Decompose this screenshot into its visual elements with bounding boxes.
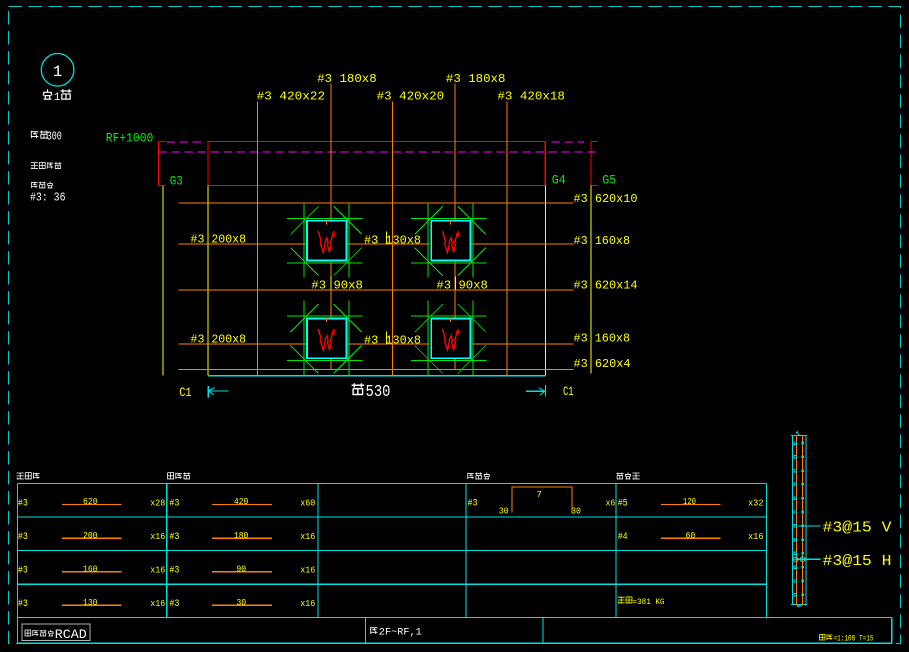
- svg-text:#3 180x8: #3 180x8: [317, 72, 377, 86]
- svg-text:x6: x6: [606, 498, 616, 508]
- svg-text:90: 90: [236, 564, 246, 574]
- svg-text:#3: #3: [18, 566, 28, 577]
- svg-text:1: 1: [53, 63, 63, 81]
- svg-text:x16: x16: [300, 532, 315, 542]
- svg-text:x16: x16: [150, 599, 165, 609]
- svg-text:30: 30: [499, 506, 509, 516]
- svg-text:#3 130x8: #3 130x8: [364, 233, 421, 247]
- svg-text:30: 30: [571, 506, 581, 516]
- svg-text:#3: #3: [468, 498, 478, 509]
- svg-text:#3 200x8: #3 200x8: [191, 332, 247, 346]
- svg-text:#3 90x8: #3 90x8: [436, 278, 488, 292]
- svg-text:x28: x28: [150, 498, 165, 508]
- svg-text:=1:100 T=15: =1:100 T=15: [834, 635, 874, 644]
- svg-text:#3: #3: [169, 599, 179, 610]
- svg-text:G3: G3: [170, 174, 183, 189]
- svg-text:#3: #3: [169, 566, 179, 577]
- svg-text:#3 200x8: #3 200x8: [191, 232, 247, 246]
- svg-text:x32: x32: [748, 498, 764, 508]
- svg-text:#5: #5: [618, 498, 628, 509]
- svg-text:300: 300: [47, 130, 62, 144]
- svg-text:530: 530: [366, 382, 391, 401]
- svg-text:G5: G5: [602, 173, 616, 188]
- svg-text:#3: #3: [169, 532, 179, 543]
- svg-text:C1: C1: [179, 385, 192, 400]
- svg-text:1: 1: [54, 92, 61, 104]
- svg-text:#3 130x8: #3 130x8: [364, 334, 421, 348]
- svg-text:x16: x16: [300, 566, 315, 576]
- svg-text:7: 7: [537, 490, 542, 500]
- svg-text:x16: x16: [150, 532, 165, 542]
- svg-text:#3: #3: [18, 599, 28, 610]
- svg-text:#4: #4: [618, 532, 628, 543]
- svg-text:#3 420x22: #3 420x22: [257, 90, 326, 104]
- svg-text:x60: x60: [300, 498, 315, 508]
- svg-text:30: 30: [236, 598, 246, 608]
- svg-text:#3: #3: [18, 498, 28, 509]
- svg-text:420: 420: [234, 497, 249, 507]
- svg-text:#3@15 H: #3@15 H: [823, 554, 892, 570]
- svg-text:620: 620: [83, 497, 98, 507]
- svg-text:#3 620x10: #3 620x10: [574, 192, 638, 206]
- svg-text:RF+1000: RF+1000: [106, 132, 154, 146]
- svg-text:#3 160x8: #3 160x8: [574, 234, 631, 248]
- svg-text:60: 60: [686, 531, 696, 541]
- svg-text:G4: G4: [552, 173, 566, 188]
- svg-text:#3 90x8: #3 90x8: [311, 278, 363, 292]
- svg-text:#3 620x14: #3 620x14: [574, 278, 638, 292]
- svg-text:#3: #3: [169, 498, 179, 509]
- svg-text:x16: x16: [748, 532, 764, 542]
- svg-text:130: 130: [83, 598, 98, 608]
- svg-text:160: 160: [83, 564, 98, 574]
- svg-text:200: 200: [83, 531, 98, 541]
- svg-text:#3: #3: [18, 532, 28, 543]
- svg-text:C1: C1: [563, 384, 574, 399]
- svg-text:=381 KG: =381 KG: [633, 597, 665, 607]
- svg-text:#3@15 V: #3@15 V: [823, 521, 892, 537]
- svg-text:#3 620x4: #3 620x4: [574, 357, 631, 371]
- svg-text:#3 160x8: #3 160x8: [574, 332, 631, 346]
- svg-text:120: 120: [683, 497, 696, 507]
- svg-text:x16: x16: [150, 566, 165, 576]
- svg-text:#3 420x18: #3 420x18: [497, 90, 565, 104]
- svg-text:x16: x16: [300, 599, 315, 609]
- svg-text:180: 180: [234, 531, 249, 541]
- svg-text:RCAD: RCAD: [55, 628, 87, 642]
- svg-text:#3: 36: #3: 36: [30, 192, 66, 205]
- svg-text:2F~RF,1: 2F~RF,1: [379, 628, 422, 639]
- svg-text:#3 420x20: #3 420x20: [377, 90, 445, 104]
